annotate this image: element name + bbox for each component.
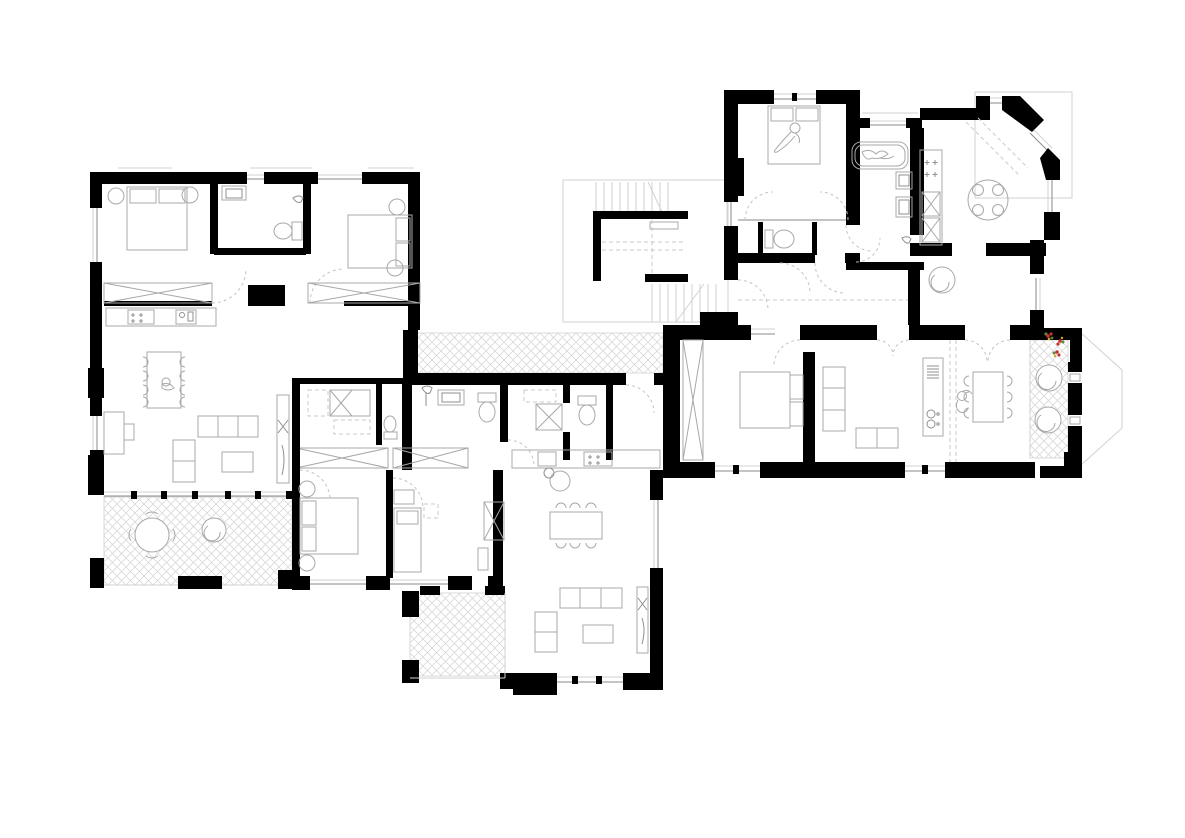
loveseat-icon [535, 612, 557, 652]
round-chair-icon [929, 267, 955, 293]
stairwell [593, 182, 716, 322]
study-and-wc [292, 378, 410, 445]
terrace-west-hatch [104, 497, 292, 585]
walkway-hatch [415, 333, 663, 373]
window [774, 93, 816, 101]
single-bed-icon [394, 490, 438, 572]
bay-window-north [962, 96, 1060, 240]
kitchen-sink-icon [176, 310, 196, 324]
sink-icon [438, 390, 464, 405]
toilet-icon [765, 230, 794, 248]
window [557, 676, 623, 684]
door-swing [846, 225, 872, 251]
apartment-north-walls [724, 90, 1060, 338]
door-swing [300, 470, 330, 500]
door-swing [626, 385, 654, 413]
stove-icon [128, 310, 154, 324]
kitchen-counter [106, 308, 216, 326]
double-bed-icon [108, 187, 198, 250]
door-swing [774, 340, 800, 366]
bathtub-icon [852, 142, 908, 169]
person-sitting-icon [956, 390, 972, 412]
roof-valley-line [966, 122, 1020, 176]
shelf-icon [637, 587, 648, 653]
window [1048, 180, 1052, 212]
stairwell-roof-outline [563, 180, 728, 322]
french-door [877, 340, 909, 356]
door-swing [212, 269, 246, 303]
vent-icon [1070, 417, 1080, 424]
person-bathing-icon [862, 150, 894, 159]
dining-table-icon [143, 352, 185, 408]
dining-table-icon [550, 503, 602, 548]
stove-icon [925, 160, 938, 177]
roof-outlines [118, 92, 1122, 466]
terrace-post [178, 576, 222, 589]
window [905, 465, 945, 474]
door-swing [745, 192, 773, 220]
coffee-table-icon [222, 452, 253, 472]
door-swing [780, 263, 810, 293]
sink-icon [896, 197, 912, 217]
loveseat-icon [856, 428, 898, 448]
french-door [965, 340, 1010, 362]
dining-table-icon [956, 372, 1012, 422]
sofa-icon [823, 367, 845, 431]
window [715, 465, 760, 474]
wardrobe-icon [683, 340, 703, 460]
door-swing [815, 263, 845, 293]
person-lying-icon [774, 123, 800, 152]
round-table-icon [968, 180, 1008, 220]
sofa-icon [198, 416, 258, 437]
desk-x-icon [308, 390, 370, 434]
window [870, 121, 906, 125]
shelf-icon [478, 548, 488, 570]
kitchen-island-icon [923, 358, 943, 436]
window [751, 329, 775, 334]
window [1036, 278, 1040, 310]
lounge-chair-icon [202, 518, 226, 542]
floor-plan-drawing [0, 0, 1185, 838]
shelf-icon [277, 395, 289, 483]
shower-head-icon [422, 386, 432, 406]
toilet-icon [274, 222, 302, 240]
door-swing [820, 192, 848, 220]
winter-garden-hatch [1030, 340, 1068, 458]
loveseat-icon [173, 440, 195, 482]
sofa-icon [560, 588, 622, 608]
sliding-door-opening [950, 340, 956, 462]
stair-flight-up [596, 182, 668, 212]
stair-landing [602, 220, 686, 274]
sink-icon [222, 186, 246, 200]
double-bed-icon [740, 372, 803, 428]
toilet-icon [478, 393, 496, 422]
toilet-icon [578, 396, 596, 425]
wardrobe-icon [524, 390, 562, 430]
shower-head-icon [293, 196, 303, 203]
round-chair-icon [550, 471, 570, 491]
wardrobe-icon [308, 283, 420, 303]
toilet-icon [384, 416, 397, 439]
shower-head-icon [902, 237, 911, 243]
roof-valley-line [978, 118, 1028, 168]
sink-icon [896, 172, 912, 189]
apartment-north-furniture [738, 106, 1008, 310]
double-bed-icon [768, 106, 820, 164]
person-sitting-icon [162, 378, 174, 390]
cabinet-icon [922, 192, 940, 242]
lounge-chair-icon [1036, 365, 1062, 391]
lounge-chair-icon [1035, 407, 1061, 433]
bay-outline-east [1080, 332, 1122, 466]
door-swing [738, 280, 768, 310]
wardrobe-icon [104, 283, 212, 303]
stair-handrail [650, 222, 678, 229]
wardrobe-icon [296, 448, 388, 468]
desk-icon [104, 412, 134, 454]
coffee-table-icon [583, 625, 613, 643]
window [654, 500, 658, 568]
apartment-east-furniture [683, 332, 1065, 460]
floor-plan-page [0, 0, 1185, 838]
double-bed-icon [299, 481, 358, 571]
balcony-south-hatch [410, 593, 505, 676]
window [1030, 130, 1052, 151]
double-bed-icon [348, 199, 412, 276]
vent-icon [1070, 374, 1080, 381]
apartment-east-walls [663, 312, 1082, 478]
